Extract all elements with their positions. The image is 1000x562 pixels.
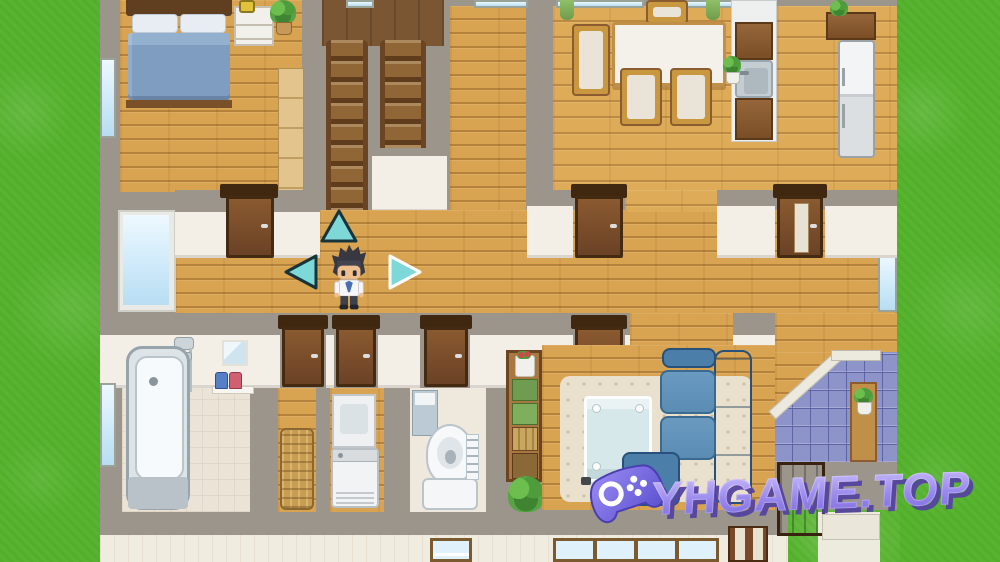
wall — [326, 335, 334, 388]
basin-towel — [415, 393, 435, 405]
window-glass — [123, 215, 169, 305]
refrigerator[interactable] — [838, 40, 875, 158]
wall — [733, 313, 775, 335]
stairs-up-left[interactable] — [326, 40, 368, 214]
laundry-sink — [332, 394, 376, 448]
dining-door[interactable] — [575, 196, 623, 258]
bedroom-window — [100, 58, 116, 138]
dining-chair-left — [572, 24, 610, 96]
fridge-handle — [842, 68, 845, 86]
move-arrow-right[interactable] — [386, 252, 424, 292]
shampoo-bottle-red — [229, 372, 242, 389]
corridor-window — [474, 0, 528, 8]
watermark: YHGAME.TOP YHGAME.TOP — [588, 452, 1000, 552]
laundry-basket[interactable] — [280, 428, 314, 510]
corridor-floor — [450, 6, 526, 212]
bathtub[interactable] — [126, 346, 190, 510]
curtain — [560, 0, 574, 20]
move-arrow-left[interactable] — [282, 252, 320, 292]
entry-plant-pot — [857, 402, 872, 415]
washing-machine[interactable] — [331, 448, 379, 508]
bathtub-basin — [135, 356, 184, 480]
washer-button — [338, 453, 343, 458]
facade-window-small — [430, 538, 472, 562]
fridge-handle — [842, 104, 845, 128]
toilet-control-panel[interactable] — [466, 434, 479, 480]
bed-pillow — [132, 14, 178, 33]
stairs-up-right[interactable] — [380, 40, 426, 148]
alarm-clock — [239, 0, 255, 13]
kitchen-plant-pot — [726, 72, 740, 84]
dining-chair-bottom — [670, 68, 712, 126]
green-bin — [512, 379, 538, 401]
hallway-window-left — [118, 210, 176, 312]
bookshelf[interactable] — [506, 350, 542, 482]
dining-opening-floor — [625, 190, 717, 212]
living-opening-floor — [630, 313, 733, 347]
player-pants — [340, 296, 348, 306]
player-face — [338, 266, 361, 279]
washer-vents — [336, 490, 374, 504]
watermark-text: YHGAME.TOP YHGAME.TOP — [650, 460, 973, 525]
game-viewport: YHGAME.TOP YHGAME.TOP — [0, 0, 1000, 562]
wall — [527, 206, 555, 258]
green-bin — [512, 403, 538, 425]
laundry-door[interactable] — [336, 327, 376, 387]
dining-chair-bottom — [620, 68, 662, 126]
bedroom-plant-pot — [276, 22, 292, 35]
sink-faucet-icon — [739, 71, 749, 75]
bedroom-plant — [270, 0, 296, 24]
player-character[interactable] — [329, 242, 369, 312]
stair-window — [346, 0, 374, 8]
sink-bowl — [340, 404, 368, 434]
wall — [717, 206, 775, 258]
bed-pillow — [180, 14, 226, 33]
dining-chair-top — [646, 0, 688, 24]
move-arrow-up[interactable] — [318, 208, 360, 244]
bathtub-drain — [149, 377, 158, 386]
bed-blanket — [128, 33, 230, 100]
hallway-window-right — [878, 254, 897, 312]
player-shoes — [339, 305, 348, 310]
toilet-basin — [412, 390, 438, 436]
books — [512, 427, 538, 451]
table-bolt — [635, 404, 644, 413]
grass-left — [0, 0, 100, 562]
bathroom-mirror — [222, 340, 248, 366]
toilet-tank — [422, 478, 478, 510]
vase-flower — [517, 351, 531, 359]
wall — [553, 206, 573, 258]
kitchen-shelf — [826, 12, 876, 40]
bed — [126, 0, 232, 108]
kitchen-cabinet-bottom[interactable] — [735, 98, 773, 140]
floor-plant — [508, 476, 544, 512]
curtain — [706, 0, 720, 20]
bedroom-door[interactable] — [226, 196, 274, 258]
toilet-door[interactable] — [424, 327, 468, 387]
entry-step-edge — [831, 350, 881, 361]
bedroom-closet[interactable] — [278, 68, 304, 192]
door-glass-insert — [794, 203, 809, 253]
stair-lower-wall — [372, 156, 447, 212]
shelf-plant — [830, 0, 848, 16]
table-bolt — [592, 404, 601, 413]
kitchen-cabinet-top[interactable] — [735, 22, 773, 60]
kitchen-door[interactable] — [777, 196, 823, 258]
bathroom-window — [100, 383, 116, 467]
bed-footboard — [126, 100, 232, 108]
toilet-bowl — [445, 450, 456, 464]
bath-hall-door[interactable] — [282, 327, 324, 387]
bathtub-apron — [128, 477, 188, 509]
sofa-armrest — [662, 348, 716, 368]
wall — [825, 206, 897, 258]
shampoo-bottle-blue — [215, 372, 228, 389]
sofa-seat[interactable] — [660, 370, 716, 414]
wall — [378, 335, 420, 388]
